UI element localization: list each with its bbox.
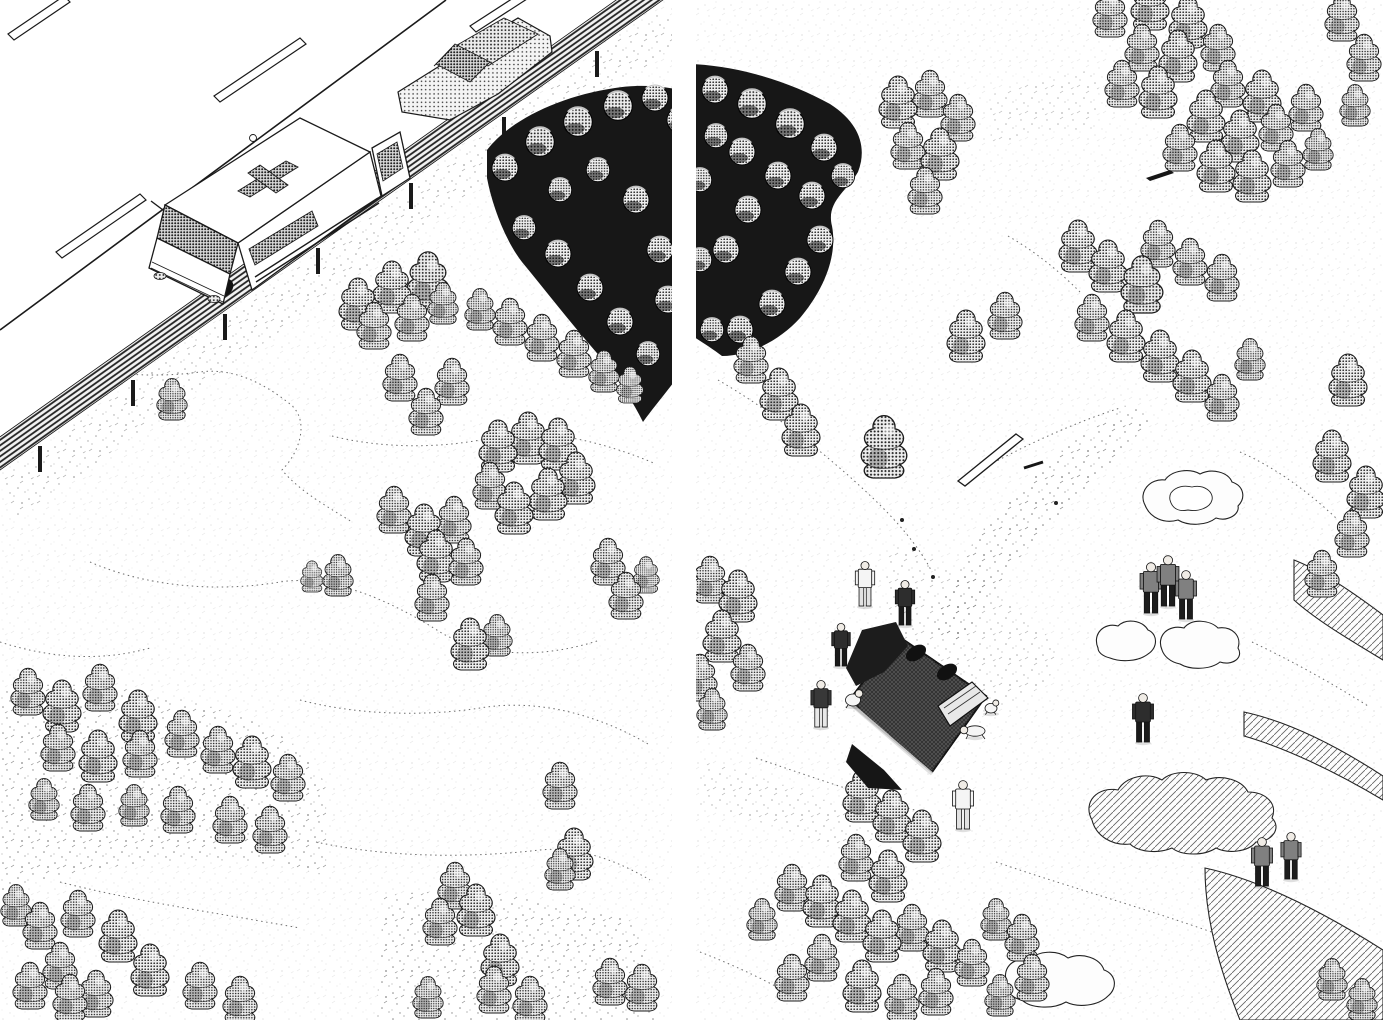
- ambulance-roof-light: [250, 135, 257, 142]
- grove-canopy-bump: [492, 155, 518, 181]
- grove-canopy-bump: [577, 275, 603, 301]
- tree: [1131, 0, 1169, 30]
- grove-canopy-bump: [831, 164, 854, 187]
- rock-hollow: [1170, 486, 1212, 510]
- panel-gutter: [672, 0, 696, 1020]
- rock: [1160, 621, 1239, 668]
- artwork: [0, 0, 1383, 1020]
- grove-canopy-bump: [785, 259, 811, 285]
- grove-canopy-bump: [647, 237, 673, 263]
- grove-canopy-bump: [807, 227, 833, 253]
- grove-canopy-bump: [526, 128, 555, 157]
- grove-canopy-bump: [642, 85, 668, 111]
- tree: [1093, 0, 1127, 37]
- ambulance-headlight: [154, 273, 166, 280]
- grove-canopy-bump: [604, 92, 633, 121]
- grove-canopy-bump: [512, 216, 535, 239]
- panel-left: [0, 0, 693, 1020]
- grove-canopy-bump: [702, 77, 728, 103]
- manga-spread: [0, 0, 1383, 1020]
- debris-fragment: [931, 575, 935, 579]
- grove-canopy-bump: [545, 241, 571, 267]
- grove-canopy-bump: [738, 90, 767, 119]
- grove-canopy-bump: [799, 183, 825, 209]
- grove-canopy-bump: [765, 163, 791, 189]
- grove-canopy-bump: [729, 139, 755, 165]
- tree: [1325, 0, 1359, 41]
- grove-canopy-bump: [586, 158, 609, 181]
- grove-canopy-bump: [759, 291, 785, 317]
- grove-canopy-bump: [623, 187, 649, 213]
- debris-fragment: [912, 547, 916, 551]
- ambulance-headlight: [208, 296, 220, 303]
- grove-canopy-bump: [636, 342, 659, 365]
- grove-canopy-bump: [700, 318, 723, 341]
- grove-canopy-bump: [713, 237, 739, 263]
- grove-canopy-bump: [607, 309, 633, 335]
- grove-canopy-bump: [811, 135, 837, 161]
- panel-right: [683, 0, 1383, 1020]
- grove-canopy-bump: [776, 110, 805, 139]
- grove-canopy-bump: [704, 124, 727, 147]
- debris-fragment: [1054, 501, 1058, 505]
- debris-fragment: [900, 518, 904, 522]
- grove-canopy-bump: [548, 178, 571, 201]
- grove-canopy-bump: [735, 197, 761, 223]
- grove-canopy-bump: [564, 108, 593, 137]
